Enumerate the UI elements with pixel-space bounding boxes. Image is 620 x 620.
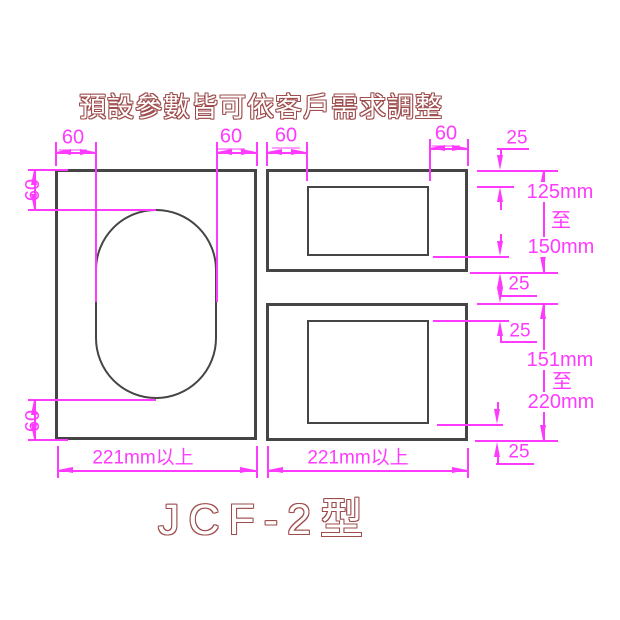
dimension-arrow (540, 304, 546, 319)
extension-line (467, 448, 469, 478)
drawing-note: 預設參數皆可依客戶需求調整 (79, 86, 443, 125)
extension-line (433, 256, 509, 258)
dim-label-range2-sep: 至 (550, 372, 574, 392)
dimension-arrow (452, 467, 467, 473)
right-top-opening (307, 186, 429, 256)
dim-label-margin-1: 25 (506, 129, 527, 148)
dimension-arrow (494, 409, 500, 424)
right-bottom-opening (307, 320, 429, 424)
cad-drawing: 預設參數皆可依客戶需求調整 60 60 60 60 60 60 (0, 0, 620, 620)
dim-label-margin-4: 25 (508, 443, 529, 462)
extension-line (256, 446, 258, 478)
leader-line (496, 463, 534, 465)
dimension-arrow (494, 442, 500, 457)
model-label: JCF-2型 (158, 485, 372, 547)
dim-label-margin-3: 25 (509, 322, 530, 341)
dim-label-range1-max: 150mm (526, 237, 597, 257)
dimension-arrow (540, 425, 546, 440)
dim-label-top-1: 60 (59, 128, 87, 151)
extension-line (28, 209, 156, 211)
dim-label-width-right: 221mm以上 (307, 449, 408, 468)
dim-label-margin-2: 25 (508, 275, 529, 294)
dim-label-range2-min: 151mm (525, 350, 596, 370)
leader-line (500, 295, 537, 297)
extension-line (28, 439, 68, 441)
extension-line (467, 139, 469, 166)
dim-label-left-bottom: 60 (23, 410, 43, 432)
dimension-arrow (240, 467, 255, 473)
dim-label-width-left: 221mm以上 (92, 449, 193, 468)
dim-label-left-top: 60 (23, 179, 43, 201)
dimension-arrow (497, 241, 503, 256)
dimension-line (543, 303, 545, 441)
extension-line (306, 142, 308, 181)
dim-label-range2-max: 220mm (526, 392, 597, 412)
extension-line (95, 142, 97, 302)
extension-line (216, 142, 218, 302)
dimension-line (500, 202, 502, 210)
extension-line (477, 186, 514, 188)
dim-label-range1-min: 125mm (525, 182, 596, 202)
dimension-arrow (58, 467, 73, 473)
dim-label-range1-sep: 至 (549, 211, 573, 231)
dimension-arrow (497, 321, 503, 336)
dimension-line (57, 470, 257, 472)
dimension-arrow (497, 155, 503, 170)
dimension-arrow (540, 256, 546, 271)
oval-cutout (95, 209, 217, 399)
dimension-arrow (241, 149, 256, 155)
dimension-arrow (268, 467, 283, 473)
extension-line (28, 399, 156, 401)
dimension-arrow (497, 288, 503, 303)
dimension-arrow (291, 149, 306, 155)
dimension-arrow (497, 187, 503, 202)
extension-line (256, 142, 258, 166)
dim-label-top-4: 60 (432, 124, 460, 147)
dimension-line (267, 470, 468, 472)
extension-line (267, 446, 269, 478)
dim-label-top-3: 60 (272, 126, 300, 149)
extension-line (57, 446, 59, 478)
extension-line (437, 424, 503, 426)
dimension-arrow (267, 149, 282, 155)
dimension-arrow (217, 149, 232, 155)
dim-label-top-2: 60 (217, 127, 245, 150)
